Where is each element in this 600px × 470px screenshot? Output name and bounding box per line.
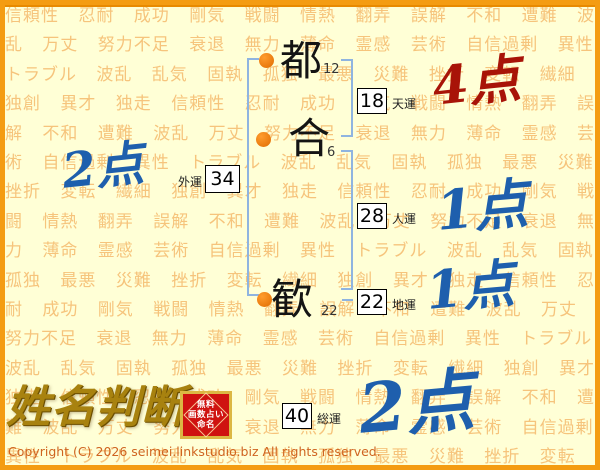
- chiun-value-box: 22: [357, 289, 387, 315]
- chiun-score: 1点: [424, 258, 516, 317]
- gaiun-value-box: 34: [205, 165, 240, 193]
- tenun-label: 天運: [392, 98, 416, 110]
- jinun-bracket: [341, 150, 353, 290]
- soun-value-box: 40: [282, 403, 312, 429]
- copyright-text: Copyright (C) 2026 seimei.linkstudio.biz…: [8, 446, 381, 459]
- gaiun-bracket: [247, 58, 259, 296]
- jinun-score: 1点: [434, 176, 530, 238]
- jinun-value-box: 28: [357, 203, 387, 229]
- char-bullet-icon: [256, 132, 271, 147]
- gaiun-score: 2点: [60, 139, 146, 195]
- soun-label: 総運: [317, 413, 341, 425]
- seal-text: 無料 画数占い 命名: [183, 394, 229, 436]
- stroke-count-3: 22: [321, 305, 338, 318]
- seal-line-3: 命名: [197, 420, 215, 430]
- chiun-label: 地運: [392, 299, 416, 311]
- stroke-count-2: 6: [327, 146, 335, 159]
- tenun-score: 4点: [430, 53, 523, 114]
- char-bullet-icon: [259, 53, 274, 68]
- site-logo: 姓名判断: [6, 386, 186, 430]
- tenun-value-box: 18: [357, 88, 387, 114]
- gaiun-label: 外運: [178, 176, 202, 188]
- soun-score: 2点: [356, 366, 477, 444]
- jinun-label: 人運: [392, 213, 416, 225]
- seal-line-1: 無料: [197, 400, 215, 410]
- tenun-bracket: [341, 59, 353, 137]
- name-character-2: 合: [288, 118, 330, 160]
- char-bullet-icon: [257, 292, 272, 307]
- seimei-fortune-result: 信頼性 忍耐 成功 剛気 戦闘 情熱 翻弄 誤解 不和 遭難 波乱 万丈 努力不…: [0, 0, 600, 470]
- stroke-count-1: 12: [323, 63, 340, 76]
- free-naming-seal: 無料 画数占い 命名: [180, 391, 232, 439]
- name-character-1: 都: [280, 40, 322, 82]
- name-character-3: 歓: [271, 279, 313, 321]
- chiun-connector: [342, 299, 353, 301]
- seal-line-2: 画数占い: [188, 410, 224, 420]
